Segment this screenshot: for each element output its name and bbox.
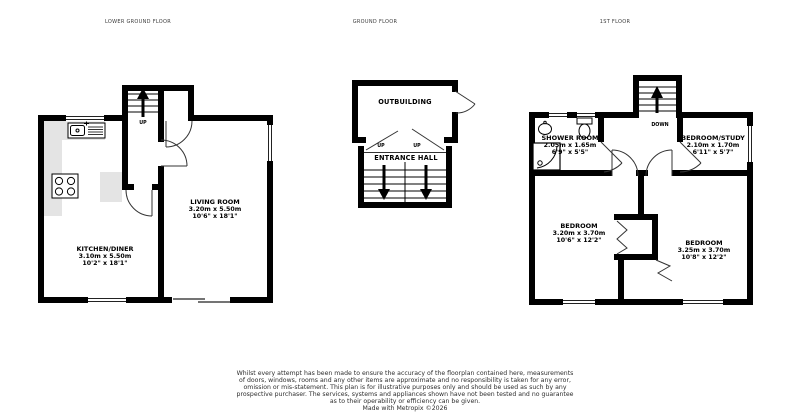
bifold-door xyxy=(617,221,672,281)
floorplan-linework xyxy=(0,0,800,414)
room-name: SHOWER ROOM xyxy=(541,135,598,142)
room-name: BEDROOM xyxy=(678,240,731,247)
room-size-imperial: 6'11" x 5'7" xyxy=(681,149,745,156)
room-size-metric: 3.20m x 5.50m xyxy=(189,206,242,213)
metropix-credit: Made with Metropix ©2026 xyxy=(237,406,574,413)
room-label-bedroom-study: BEDROOM/STUDY 2.10m x 1.70m 6'11" x 5'7" xyxy=(681,135,745,156)
room-size-metric: 2.10m x 1.70m xyxy=(681,142,745,149)
plan-first-floor xyxy=(532,78,754,306)
room-label-bedroom-left: BEDROOM 3.20m x 3.70m 10'6" x 12'2" xyxy=(553,223,606,244)
room-size-imperial: 10'2" x 18'1" xyxy=(76,260,133,267)
room-label-kitchen-diner: KITCHEN/DINER 3.10m x 5.50m 10'2" x 18'1… xyxy=(76,246,133,267)
room-label-outbuilding: OUTBUILDING xyxy=(378,98,432,106)
room-size-imperial: 10'6" x 18'1" xyxy=(189,213,242,220)
room-size-metric: 3.25m x 3.70m xyxy=(678,247,731,254)
room-size-metric: 2.05m x 1.65m xyxy=(541,142,598,149)
stairs-label-up-right: UP xyxy=(413,144,420,149)
outbuilding-wall xyxy=(352,80,458,143)
room-label-living-room: LIVING ROOM 3.20m x 5.50m 10'6" x 18'1" xyxy=(189,199,242,220)
basin-icon xyxy=(539,121,552,134)
stairs-up-arrow xyxy=(137,88,149,117)
room-name: BEDROOM xyxy=(553,223,606,230)
room-size-metric: 3.10m x 5.50m xyxy=(76,253,133,260)
sink-icon xyxy=(68,122,105,139)
room-name: KITCHEN/DINER xyxy=(76,246,133,253)
window xyxy=(66,115,274,304)
stairs-label-up-lgf: UP xyxy=(139,121,146,126)
plan-lower-ground-floor xyxy=(41,88,274,304)
room-size-imperial: 10'6" x 12'2" xyxy=(553,237,606,244)
room-label-entrance-hall: ENTRANCE HALL xyxy=(374,154,437,162)
outbuilding-door-arc xyxy=(455,91,475,113)
room-label-shower-room: SHOWER ROOM 2.05m x 1.65m 6'9" x 5'5" xyxy=(541,135,598,156)
room-size-metric: 3.20m x 3.70m xyxy=(553,230,606,237)
hob-icon xyxy=(52,174,78,198)
room-size-imperial: 6'9" x 5'5" xyxy=(541,149,598,156)
room-name: BEDROOM/STUDY xyxy=(681,135,745,142)
floorplan-page: LOWER GROUND FLOOR GROUND FLOOR 1ST FLOO… xyxy=(0,0,800,414)
disclaimer-text: Whilst every attempt has been made to en… xyxy=(237,371,574,412)
room-label-bedroom-right: BEDROOM 3.25m x 3.70m 10'8" x 12'2" xyxy=(678,240,731,261)
room-size-imperial: 10'8" x 12'2" xyxy=(678,254,731,261)
patio-door xyxy=(172,297,230,304)
floor-title-first: 1ST FLOOR xyxy=(600,19,631,25)
stairs-label-down: DOWN xyxy=(651,123,668,128)
floor-title-ground: GROUND FLOOR xyxy=(353,19,398,25)
floor-title-lower-ground: LOWER GROUND FLOOR xyxy=(105,19,171,25)
entrance-stairs xyxy=(364,162,446,202)
room-name: LIVING ROOM xyxy=(189,199,242,206)
stairs-label-up-left: UP xyxy=(377,144,384,149)
